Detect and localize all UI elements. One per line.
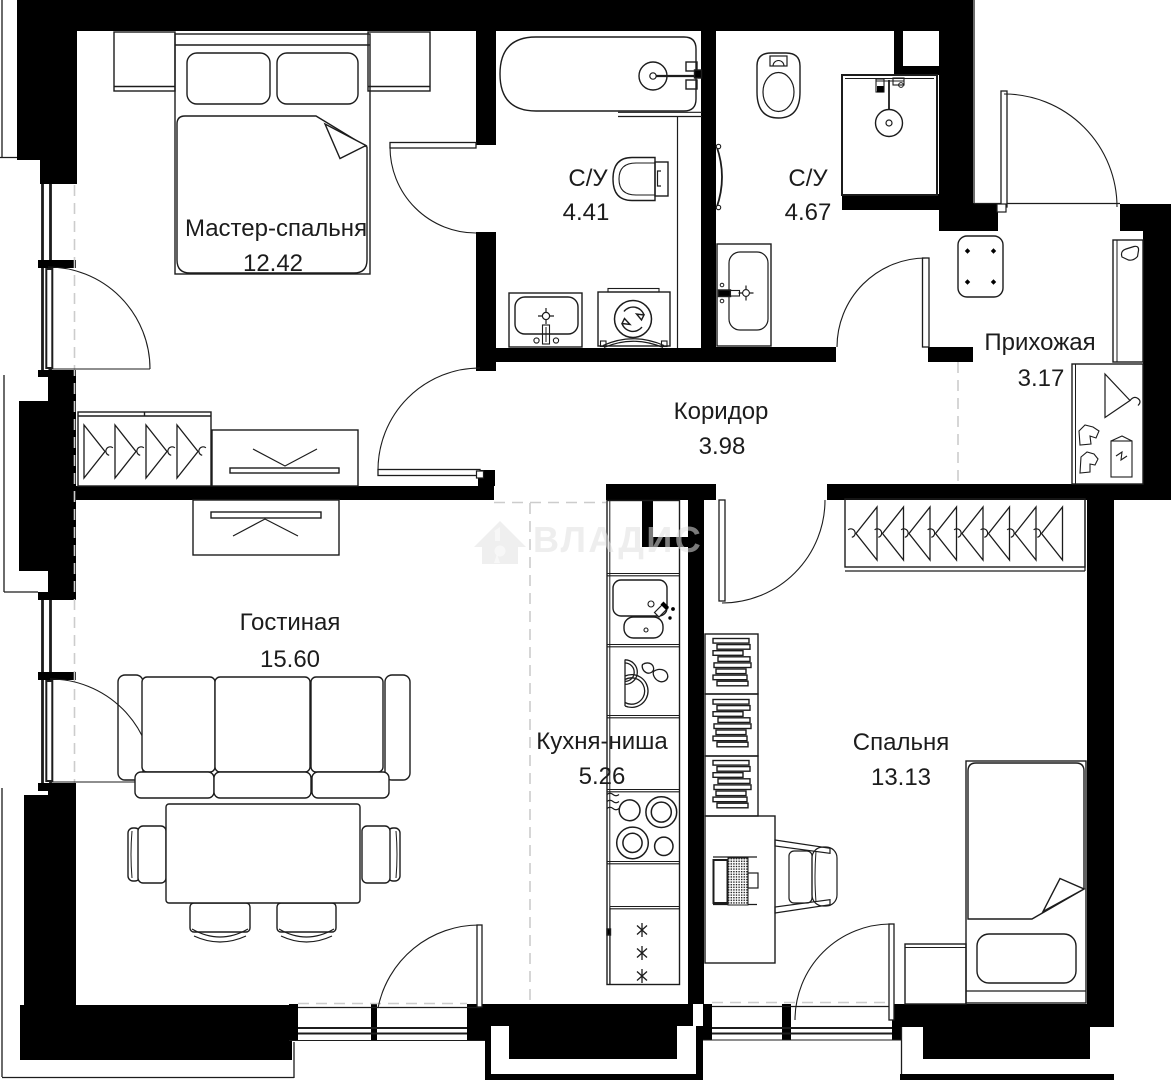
svg-text:4.41: 4.41 [563, 199, 610, 226]
svg-text:3.17: 3.17 [1018, 365, 1065, 392]
svg-text:ВЛАДИС: ВЛАДИС [533, 519, 703, 560]
svg-text:С/У: С/У [788, 165, 828, 192]
svg-text:С/У: С/У [568, 165, 608, 192]
svg-text:3.98: 3.98 [699, 433, 746, 460]
svg-text:Гостиная: Гостиная [240, 609, 341, 636]
svg-text:Прихожая: Прихожая [984, 329, 1095, 356]
svg-text:12.42: 12.42 [243, 250, 303, 277]
svg-text:4.67: 4.67 [785, 199, 832, 226]
svg-text:15.60: 15.60 [260, 646, 320, 673]
svg-text:Коридор: Коридор [674, 398, 769, 425]
svg-text:Мастер-спальня: Мастер-спальня [185, 215, 367, 242]
svg-text:Кухня-ниша: Кухня-ниша [536, 728, 668, 755]
svg-text:13.13: 13.13 [871, 764, 931, 791]
svg-text:5.26: 5.26 [579, 763, 626, 790]
svg-text:Спальня: Спальня [853, 729, 949, 756]
